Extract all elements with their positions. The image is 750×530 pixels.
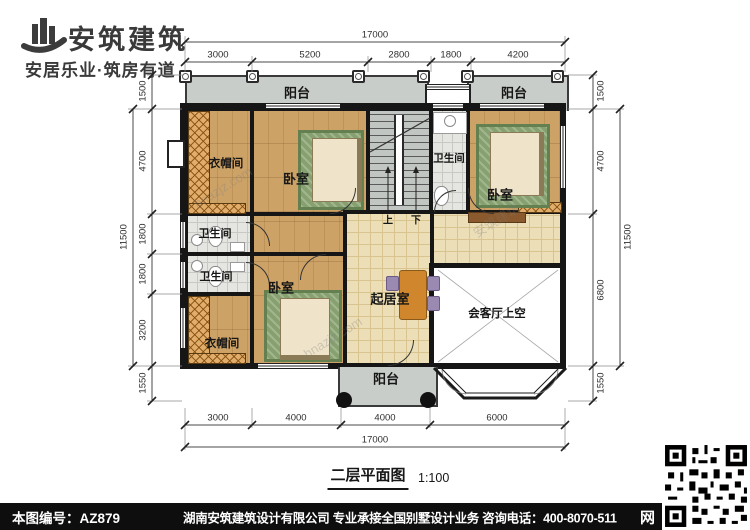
dim-right-seg: 4700 <box>596 150 607 171</box>
logo-text: 安筑建筑 <box>68 18 188 57</box>
stair-label-up: 上 <box>383 212 393 227</box>
room-label-void: 会客厅上空 <box>468 305 526 321</box>
window-icon <box>427 84 469 90</box>
column-icon <box>461 70 474 83</box>
stair-rail <box>394 115 404 205</box>
column-icon <box>420 392 436 408</box>
flue <box>167 140 185 168</box>
room-label-balcony-top-right: 阳台 <box>501 83 527 102</box>
drawing-scale: 1:100 <box>418 471 449 485</box>
dim-top-seg: 5200 <box>299 50 320 61</box>
dim-top-seg: 3000 <box>207 50 228 61</box>
logo-icon <box>20 12 68 58</box>
window-icon <box>433 103 463 109</box>
chair-icon <box>427 296 440 311</box>
room-label-cloak-bottom: 衣帽间 <box>205 335 240 351</box>
sink-icon <box>230 242 245 252</box>
dim-right-seg: 1550 <box>596 372 607 393</box>
room-label-bath-mid-upper: 卫生间 <box>199 225 232 241</box>
dim-left-seg: 1800 <box>138 223 149 244</box>
web-label: 网 <box>640 506 655 527</box>
room-label-bath-mid-lower: 卫生间 <box>200 268 233 284</box>
window-icon <box>258 363 328 369</box>
dim-right-seg: 1500 <box>596 80 607 101</box>
dim-bottom-seg: 4000 <box>285 413 306 424</box>
drawing-title: 二层平面图 <box>327 464 408 490</box>
room-label-balcony-bottom: 阳台 <box>373 369 399 388</box>
window-icon <box>180 308 186 348</box>
dim-right-seg: 6800 <box>596 279 607 300</box>
dim-top-seg: 4200 <box>507 50 528 61</box>
window-icon <box>180 262 186 288</box>
column-icon <box>352 70 365 83</box>
column-icon <box>551 70 564 83</box>
chair-icon <box>427 276 440 291</box>
room-label-bath-top-right: 卫生间 <box>433 151 465 166</box>
dim-bottom-seg: 3000 <box>207 413 228 424</box>
window-icon <box>560 126 566 188</box>
room-label-bedroom-top: 卧室 <box>283 169 309 188</box>
column-icon <box>179 70 192 83</box>
company-info: 湖南安筑建筑设计有限公司 专业承接全国别墅设计业务 咨询电话：400-8070-… <box>183 507 617 526</box>
dim-top-seg: 2800 <box>388 50 409 61</box>
column-icon <box>417 70 430 83</box>
stair-label-down: 下 <box>411 212 421 227</box>
room-label-bedroom-mid: 卧室 <box>268 278 294 297</box>
column-icon <box>246 70 259 83</box>
room-label-living: 起居室 <box>370 289 409 308</box>
dim-top-total: 17000 <box>362 30 388 41</box>
dim-left-total: 11500 <box>119 224 130 250</box>
dim-left-seg: 1800 <box>138 263 149 284</box>
qr-code <box>662 442 750 530</box>
dim-left-seg: 1550 <box>138 372 149 393</box>
dim-bottom-total: 17000 <box>362 435 388 446</box>
sink-icon <box>444 115 456 127</box>
logo-tagline: 安居乐业·筑房有道 <box>25 56 176 81</box>
dim-left-seg: 4700 <box>138 150 149 171</box>
room-label-balcony-top-left: 阳台 <box>284 83 310 102</box>
window-icon <box>480 103 544 109</box>
plan-number: 本图编号：AZ879 <box>12 507 120 527</box>
wardrobe-icon <box>188 353 246 364</box>
dim-bottom-seg: 6000 <box>486 413 507 424</box>
dim-bottom-seg: 4000 <box>374 413 395 424</box>
window-icon <box>180 222 186 248</box>
dim-left-seg: 3200 <box>138 319 149 340</box>
floor-plan-sheet: 安筑建筑 安居乐业·筑房有道 <box>0 0 750 530</box>
dim-right-total: 11500 <box>623 224 634 250</box>
footer-bar: 本图编号：AZ879 湖南安筑建筑设计有限公司 专业承接全国别墅设计业务 咨询电… <box>0 503 750 530</box>
window-icon <box>266 103 340 109</box>
column-icon <box>336 392 352 408</box>
dim-left-seg: 1500 <box>138 80 149 101</box>
dim-top-seg: 1800 <box>440 50 461 61</box>
